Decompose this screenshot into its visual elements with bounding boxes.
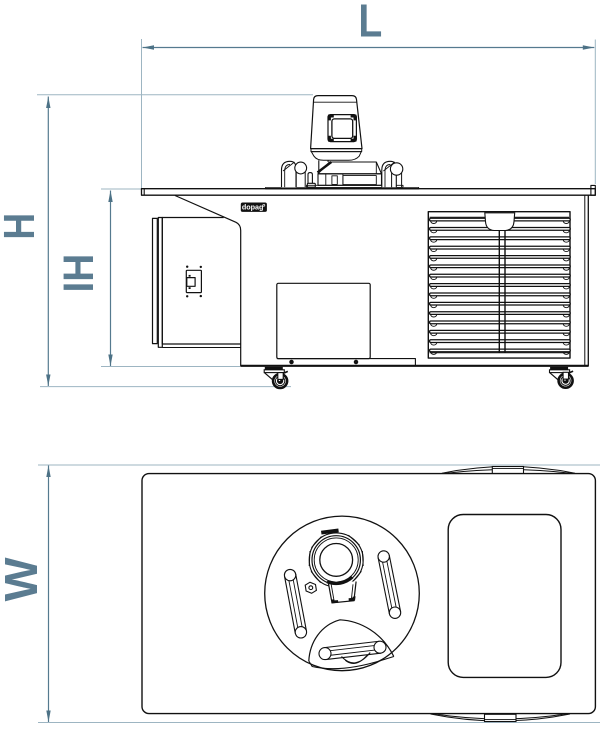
svg-text:H: H xyxy=(0,213,44,240)
svg-text:dopag: dopag xyxy=(242,203,264,212)
svg-text:W: W xyxy=(0,557,47,601)
svg-text:L: L xyxy=(358,0,382,47)
svg-text:IH: IH xyxy=(54,254,102,293)
